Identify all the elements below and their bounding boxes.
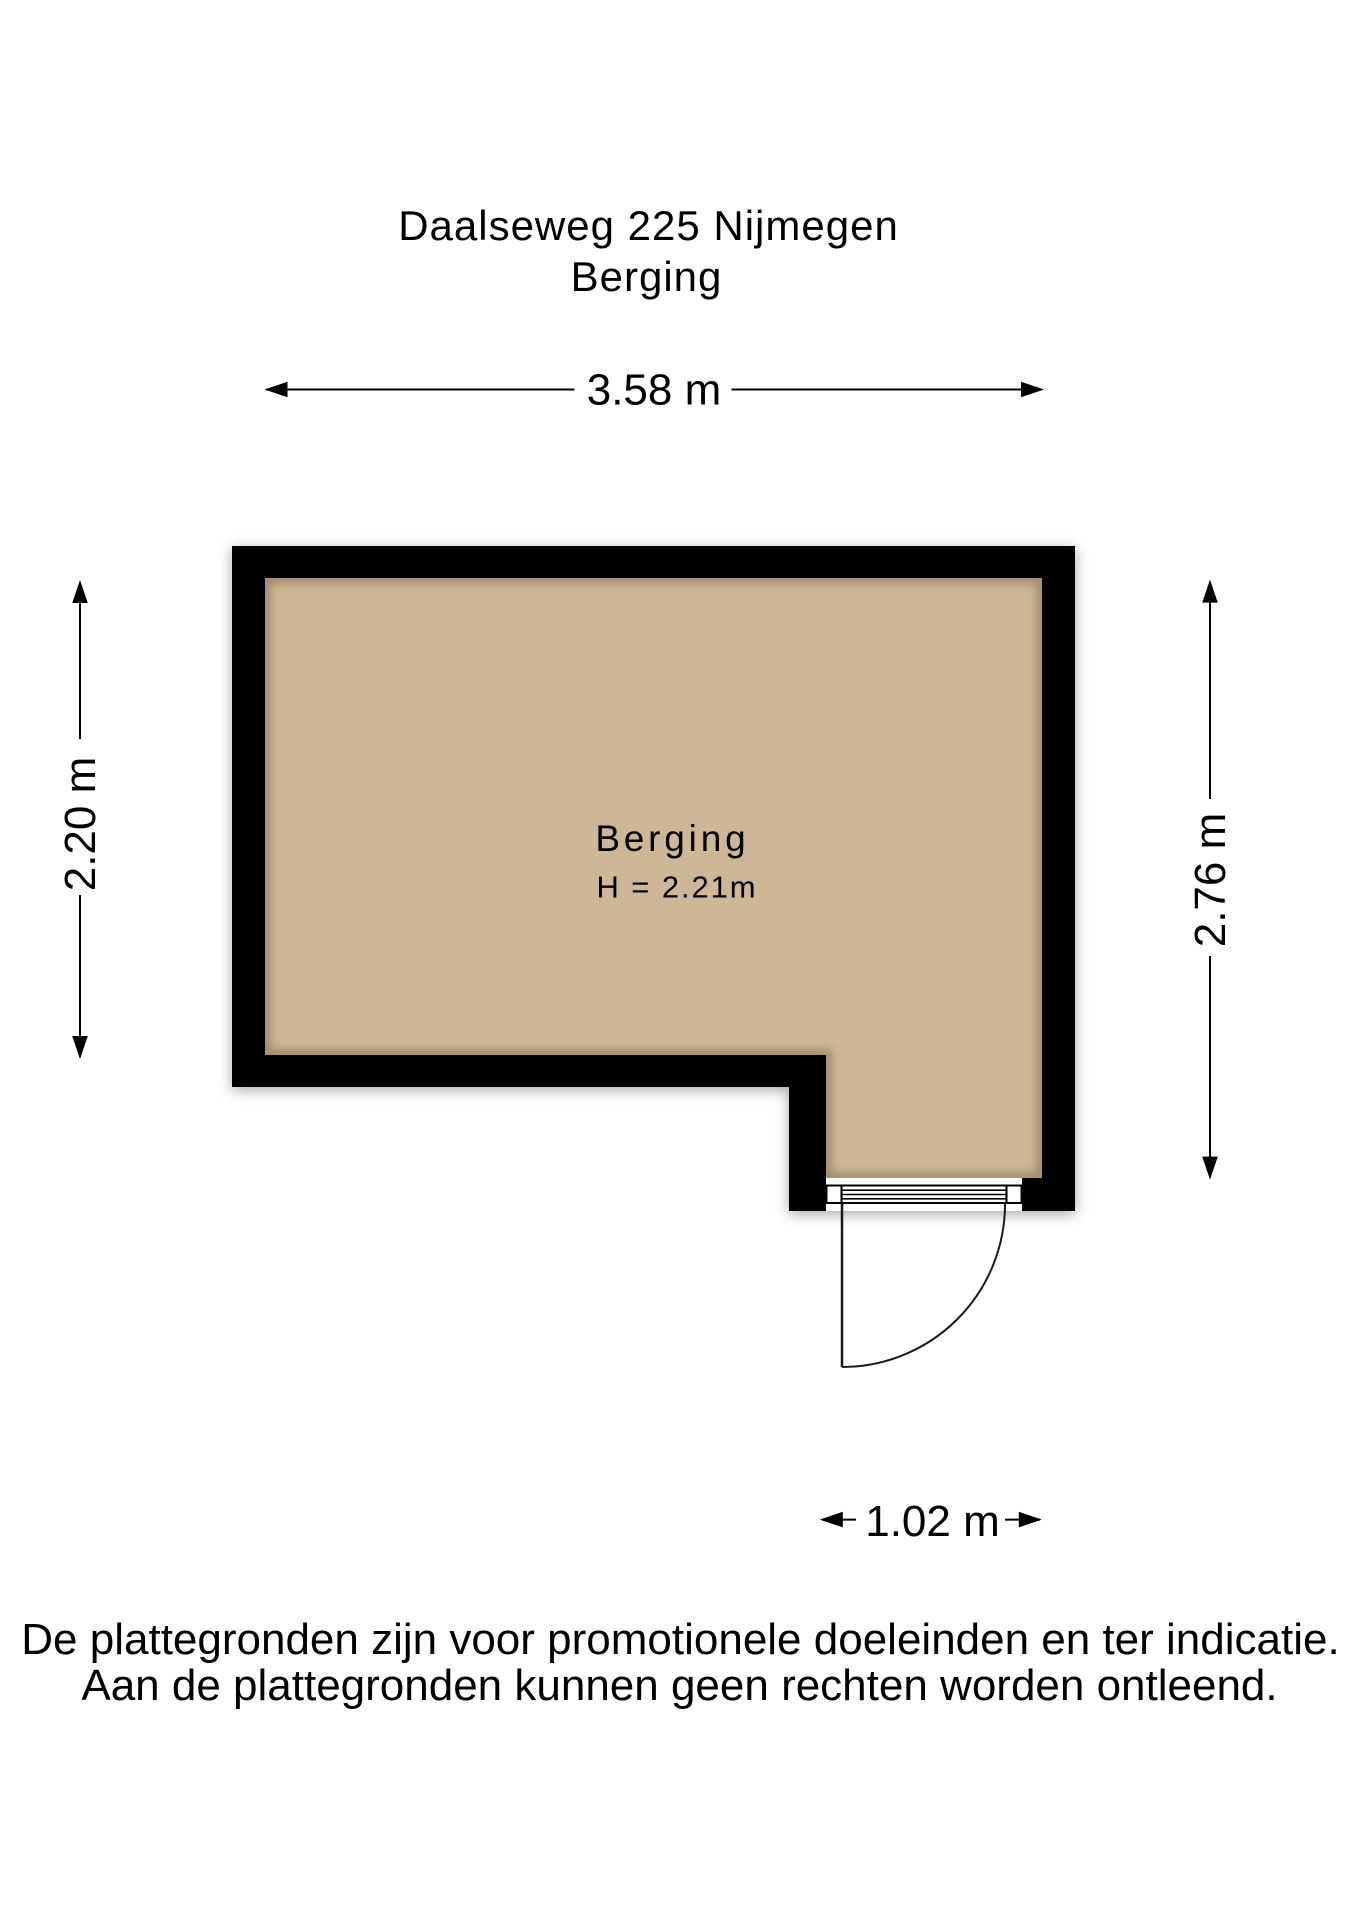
svg-text:Berging: Berging — [571, 253, 723, 300]
svg-text:1.02 m: 1.02 m — [865, 1497, 1000, 1546]
svg-text:De plattegronden zijn voor pro: De plattegronden zijn voor promotionele … — [21, 1615, 1339, 1664]
svg-text:H = 2.21m: H = 2.21m — [597, 870, 758, 905]
svg-text:Aan de plattegronden kunnen ge: Aan de plattegronden kunnen geen rechten… — [81, 1661, 1277, 1710]
svg-text:2.20 m: 2.20 m — [56, 757, 105, 892]
svg-text:Berging: Berging — [595, 818, 749, 859]
svg-text:3.58 m: 3.58 m — [587, 366, 722, 415]
svg-text:Daalseweg 225 Nijmegen: Daalseweg 225 Nijmegen — [398, 202, 899, 249]
svg-text:2.76 m: 2.76 m — [1186, 813, 1235, 948]
